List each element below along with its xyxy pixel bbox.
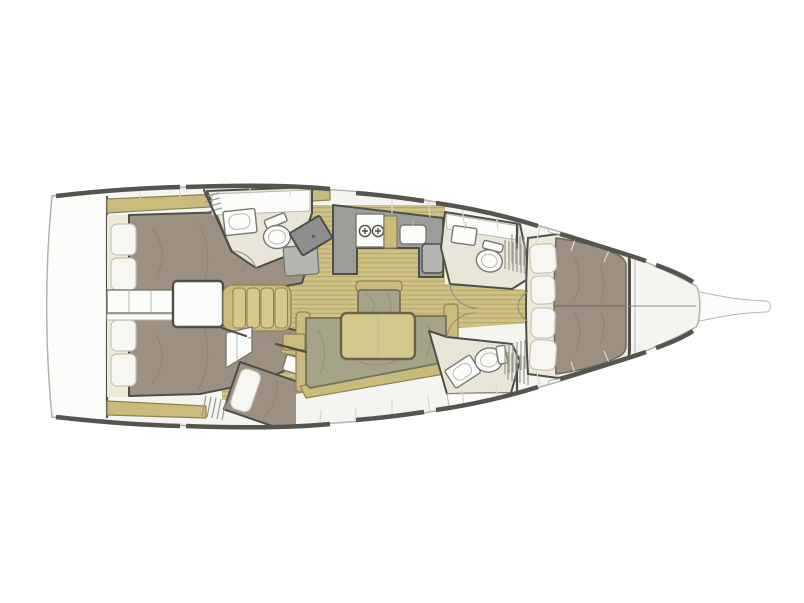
- washbasin: [451, 225, 477, 245]
- pillow: [529, 243, 557, 274]
- galley-sink: [400, 225, 426, 244]
- yacht-floorplan-image: [0, 0, 804, 603]
- pillow: [111, 354, 136, 386]
- centerline-bench: [356, 281, 402, 316]
- bowsprit: [695, 291, 771, 322]
- pillow: [530, 308, 555, 339]
- swim-platform-transom: [44, 190, 107, 424]
- pillow: [529, 339, 557, 371]
- fridge: [422, 244, 443, 273]
- engine-compartment: [173, 281, 223, 327]
- four-seat-sofa: [223, 285, 291, 331]
- pillow: [531, 276, 556, 305]
- yacht-floorplan-svg: [0, 0, 804, 603]
- pillow: [111, 258, 136, 290]
- pillow: [111, 320, 136, 351]
- pillow: [111, 224, 136, 255]
- companionway-steps: [107, 290, 174, 320]
- worktop: [384, 216, 397, 248]
